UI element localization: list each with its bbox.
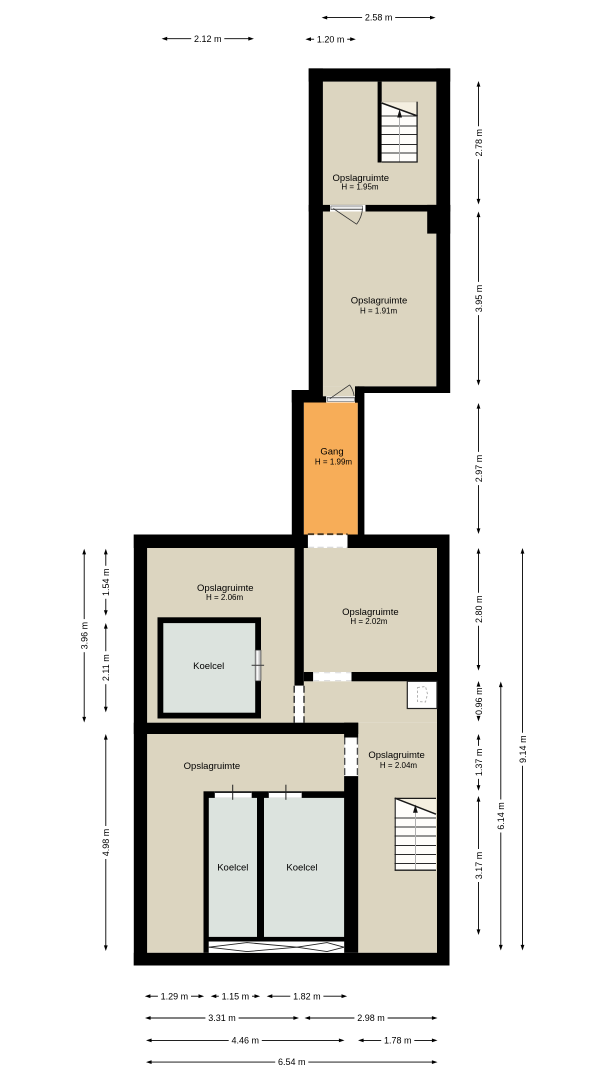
svg-text:1.82 m: 1.82 m (293, 991, 321, 1001)
svg-text:1.15 m: 1.15 m (222, 991, 250, 1001)
svg-text:2.58 m: 2.58 m (365, 13, 393, 23)
svg-text:Opslagruimte: Opslagruimte (368, 750, 425, 761)
svg-text:1.29 m: 1.29 m (161, 991, 189, 1001)
svg-text:Koelcel: Koelcel (217, 863, 248, 874)
svg-text:0.96 m: 0.96 m (474, 687, 484, 715)
svg-text:1.78 m: 1.78 m (384, 1036, 412, 1046)
svg-text:3.95 m: 3.95 m (474, 285, 484, 313)
svg-text:3.17 m: 3.17 m (474, 852, 484, 880)
svg-text:H = 1.99m: H = 1.99m (315, 457, 352, 466)
svg-text:4.98 m: 4.98 m (101, 829, 111, 857)
svg-text:H = 2.06m: H = 2.06m (206, 593, 243, 602)
svg-text:Gang: Gang (320, 446, 343, 457)
svg-text:Koelcel: Koelcel (286, 863, 317, 874)
svg-text:1.20 m: 1.20 m (317, 34, 345, 44)
svg-text:2.11 m: 2.11 m (101, 654, 111, 681)
svg-text:Opslagruimte: Opslagruimte (351, 296, 408, 307)
svg-text:H = 2.04m: H = 2.04m (380, 761, 417, 770)
svg-text:2.98 m: 2.98 m (357, 1013, 385, 1023)
svg-text:H = 1.95m: H = 1.95m (341, 183, 378, 192)
svg-text:2.80 m: 2.80 m (474, 596, 484, 624)
svg-text:9.14 m: 9.14 m (518, 735, 528, 763)
svg-text:3.31 m: 3.31 m (208, 1013, 236, 1023)
svg-text:2.97 m: 2.97 m (474, 455, 484, 483)
svg-text:Opslagruimte: Opslagruimte (184, 761, 241, 772)
svg-text:6.54 m: 6.54 m (278, 1057, 306, 1067)
svg-text:H = 1.91m: H = 1.91m (360, 307, 397, 316)
svg-text:1.54 m: 1.54 m (101, 569, 111, 597)
svg-text:1.37 m: 1.37 m (474, 749, 484, 777)
svg-text:4.46 m: 4.46 m (231, 1036, 259, 1046)
svg-text:6.14 m: 6.14 m (496, 802, 506, 830)
svg-text:3.96 m: 3.96 m (80, 622, 90, 650)
svg-text:2.78 m: 2.78 m (474, 129, 484, 157)
svg-text:Koelcel: Koelcel (193, 661, 224, 672)
svg-text:2.12 m: 2.12 m (194, 34, 222, 44)
svg-text:H = 2.02m: H = 2.02m (350, 617, 387, 626)
